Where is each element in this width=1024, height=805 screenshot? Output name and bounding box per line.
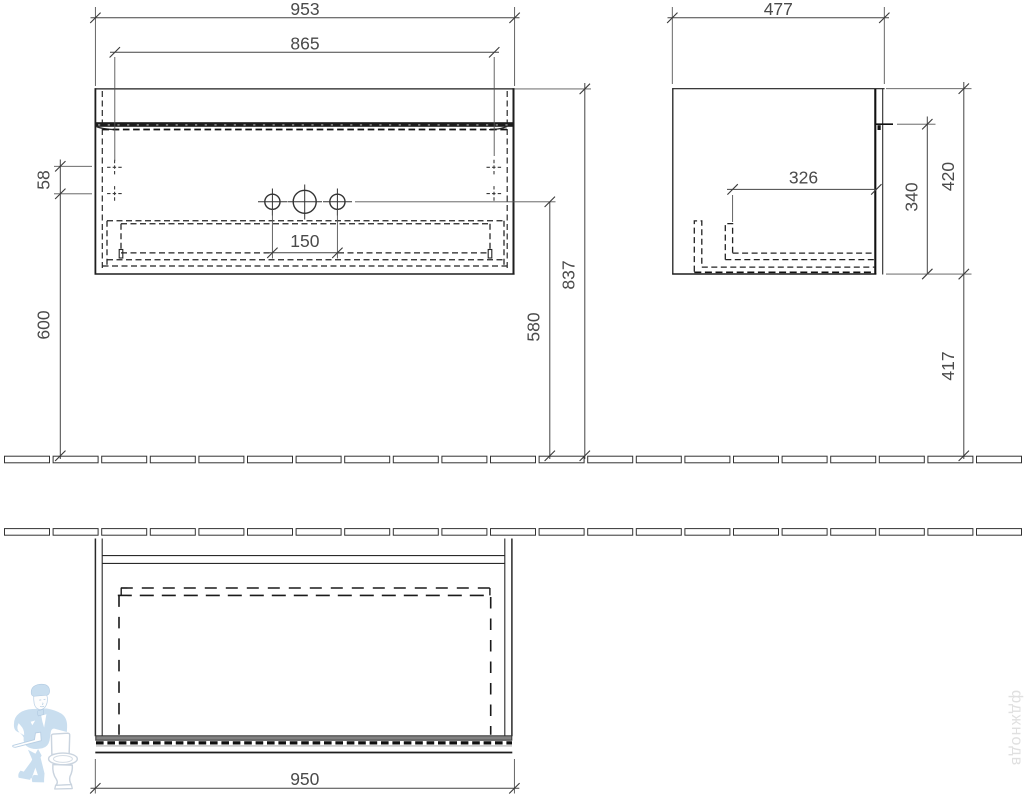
svg-text:950: 950 (290, 769, 319, 789)
svg-text:865: 865 (290, 34, 319, 54)
svg-text:58: 58 (34, 170, 54, 189)
svg-text:417: 417 (938, 351, 958, 380)
svg-text:326: 326 (789, 168, 818, 188)
svg-text:953: 953 (290, 0, 319, 19)
svg-text:600: 600 (34, 310, 54, 339)
svg-text:837: 837 (559, 260, 579, 289)
svg-text:420: 420 (938, 162, 958, 191)
svg-text:477: 477 (764, 0, 793, 19)
svg-text:580: 580 (524, 312, 544, 341)
svg-text:340: 340 (902, 182, 922, 211)
svg-text:150: 150 (290, 231, 319, 251)
svg-text:фджнодв: фджнодв (1008, 690, 1024, 766)
